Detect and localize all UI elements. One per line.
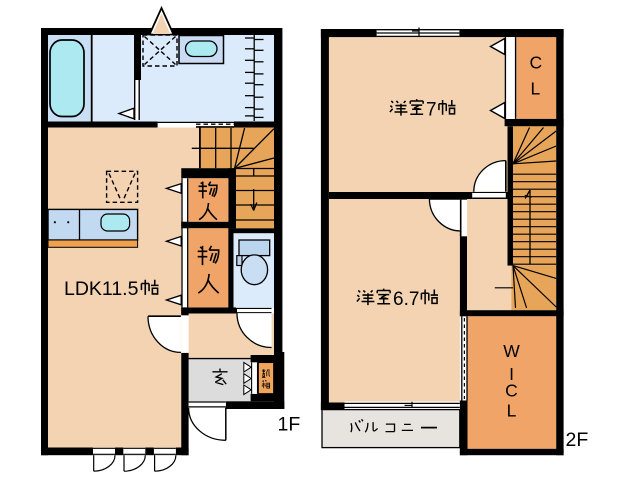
svg-text:L: L <box>507 401 517 421</box>
svg-text:1F: 1F <box>278 414 301 436</box>
svg-text:6.7: 6.7 <box>393 289 419 310</box>
svg-text:W: W <box>503 341 520 361</box>
svg-text:7: 7 <box>426 100 437 121</box>
svg-text:2F: 2F <box>566 429 589 451</box>
svg-text:C: C <box>505 381 518 401</box>
svg-text:L: L <box>531 79 541 99</box>
svg-text:C: C <box>530 53 543 73</box>
svg-text:LDK11.5: LDK11.5 <box>64 278 139 300</box>
